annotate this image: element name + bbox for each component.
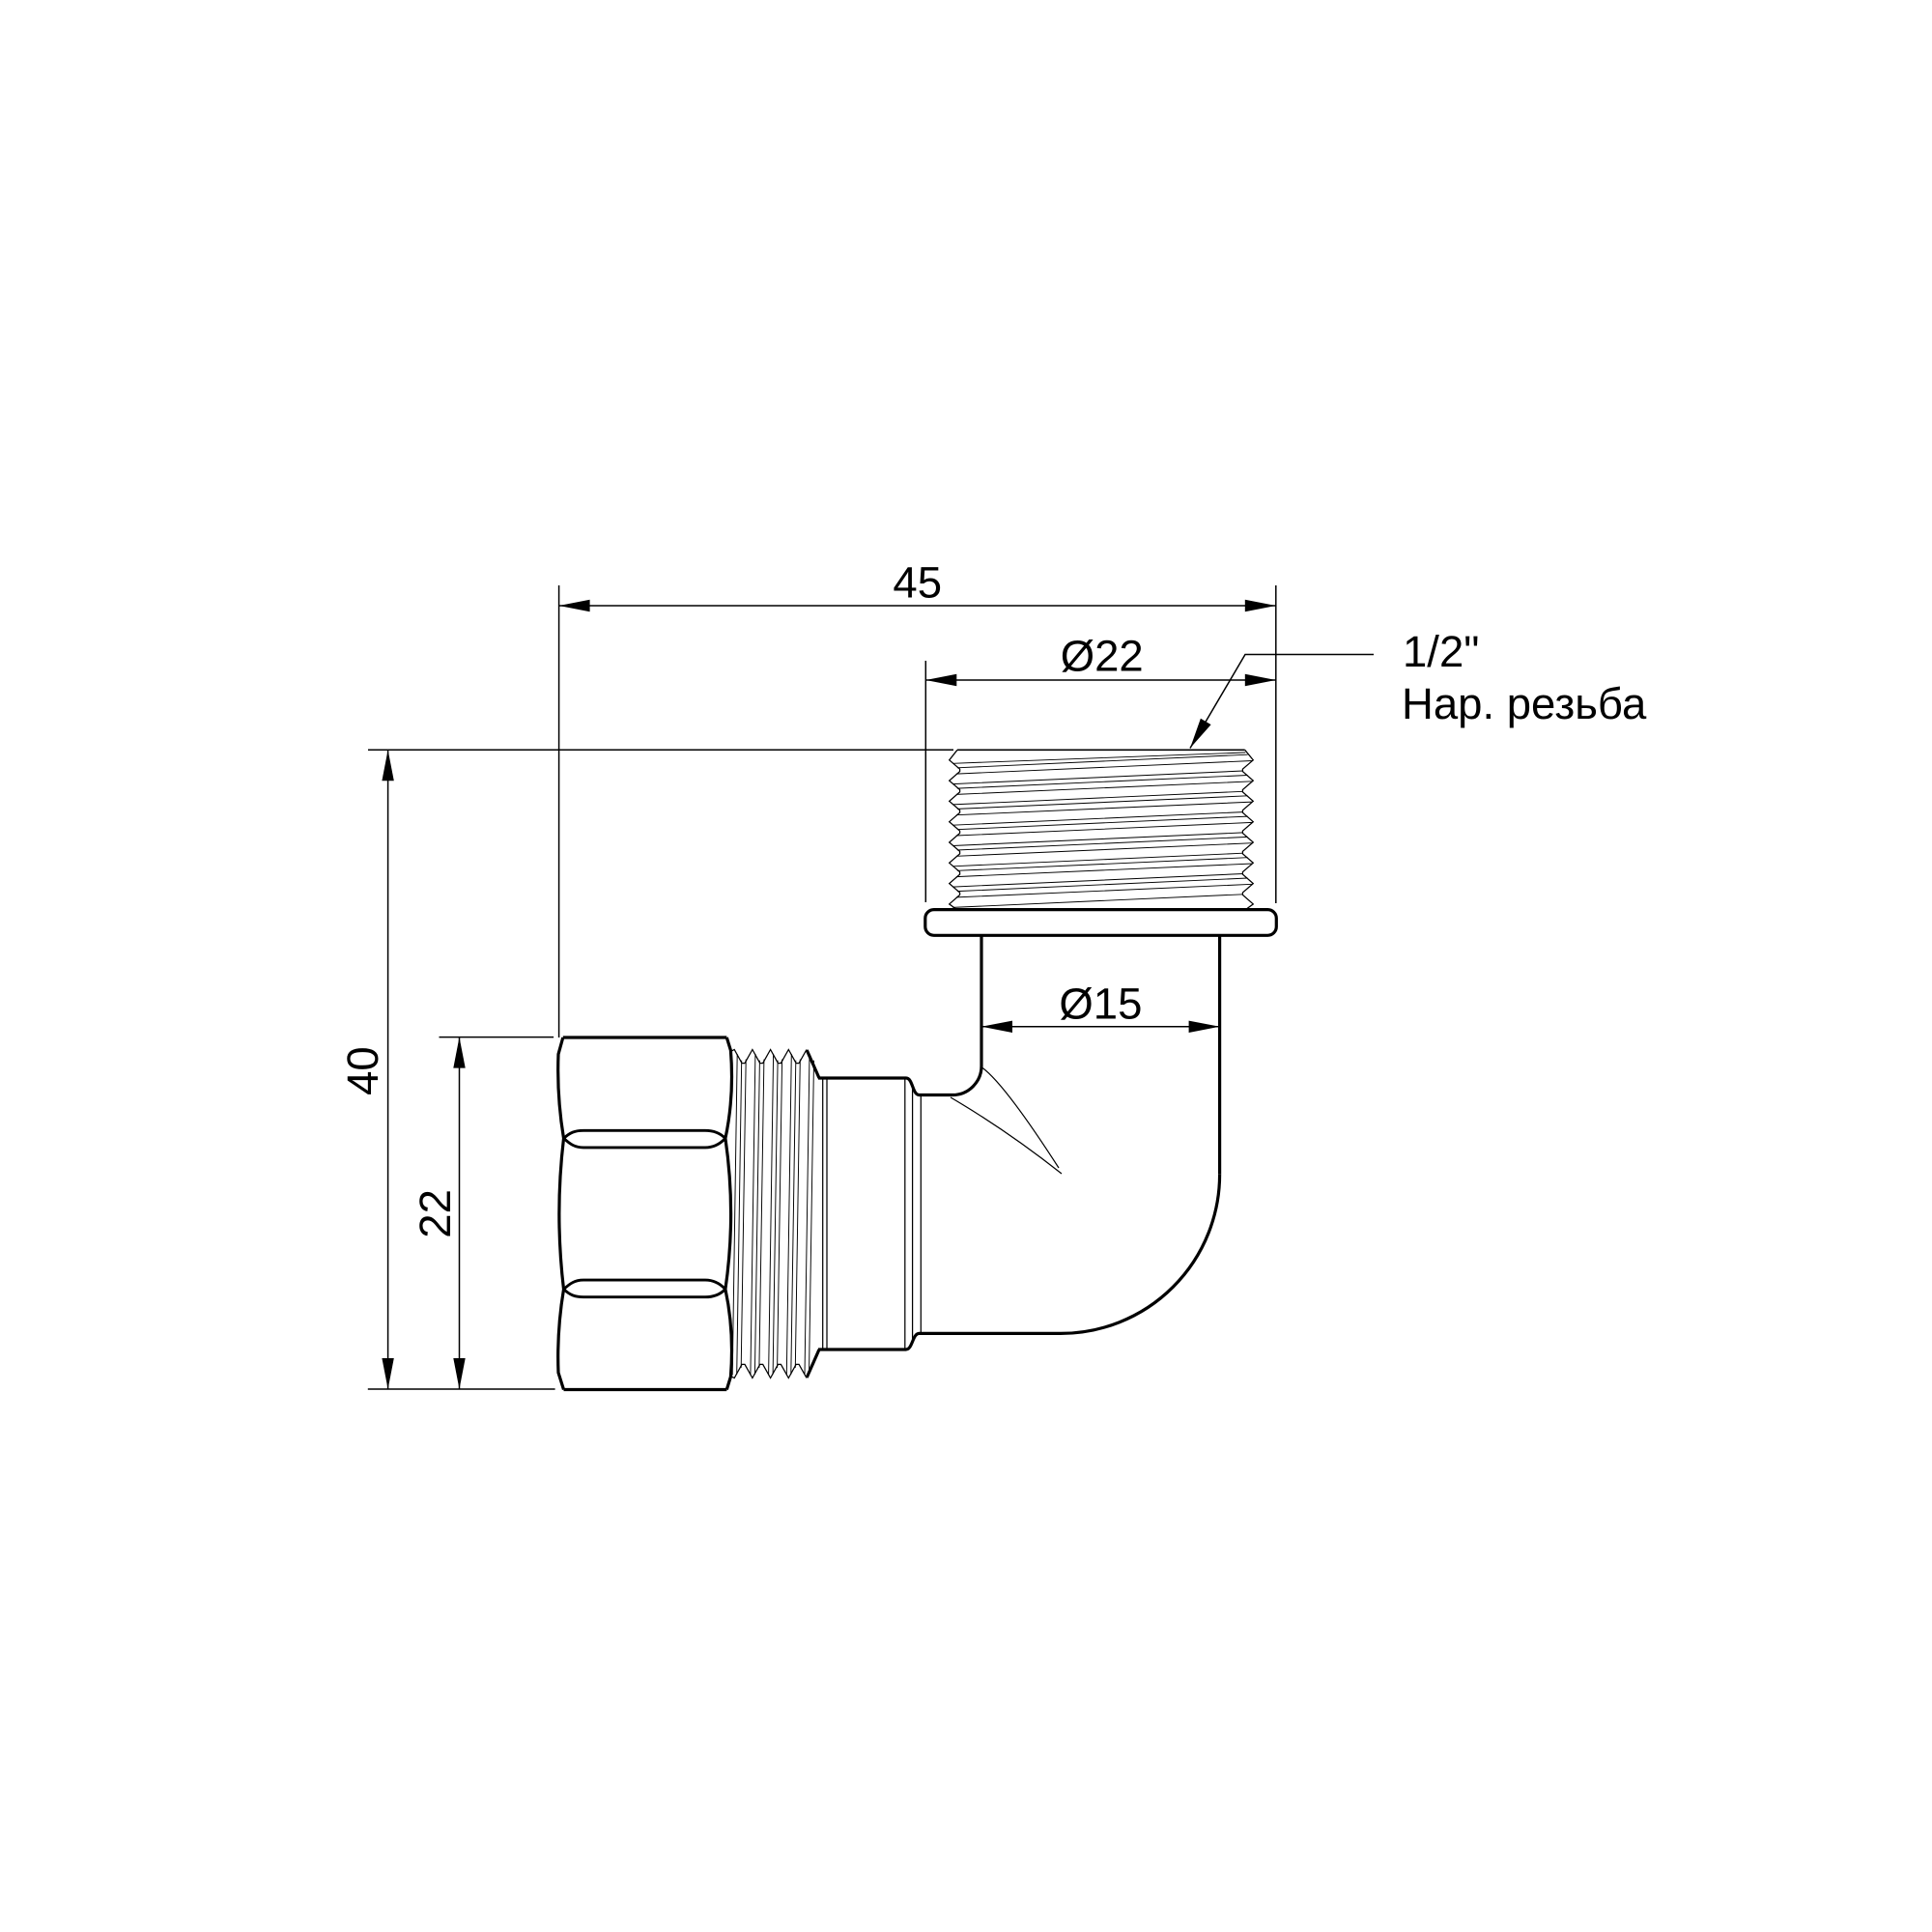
svg-text:22: 22 — [411, 1189, 460, 1238]
svg-text:1/2": 1/2" — [1403, 627, 1479, 676]
svg-text:Нар. резьба: Нар. резьба — [1402, 679, 1647, 728]
svg-text:45: 45 — [893, 558, 942, 608]
svg-text:Ø15: Ø15 — [1059, 980, 1142, 1029]
svg-text:Ø22: Ø22 — [1061, 632, 1144, 681]
svg-text:40: 40 — [338, 1046, 387, 1095]
